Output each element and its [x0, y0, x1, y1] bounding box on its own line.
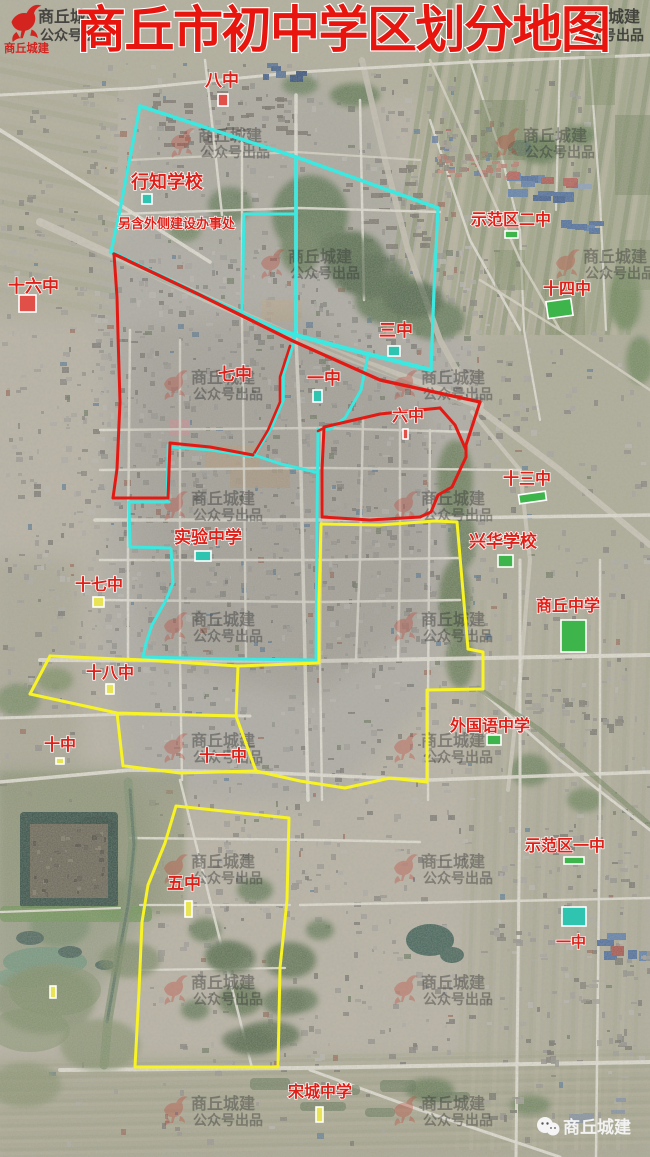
svg-text:商丘城建: 商丘城建	[191, 973, 255, 992]
svg-text:商丘城建: 商丘城建	[191, 489, 255, 508]
svg-text:公众号出品: 公众号出品	[193, 507, 263, 523]
svg-text:商丘市初中学区划分地图: 商丘市初中学区划分地图	[76, 2, 611, 58]
svg-text:十七中: 十七中	[75, 575, 123, 594]
svg-text:公众号出品: 公众号出品	[193, 628, 263, 644]
svg-text:一中: 一中	[307, 368, 341, 388]
svg-text:公众号出品: 公众号出品	[193, 870, 263, 886]
svg-text:十八中: 十八中	[86, 663, 134, 682]
svg-text:宋城中学: 宋城中学	[287, 1082, 352, 1101]
svg-text:外国语中学: 外国语中学	[449, 716, 530, 735]
svg-text:公众号出品: 公众号出品	[423, 1112, 493, 1128]
svg-text:公众号出品: 公众号出品	[423, 628, 493, 644]
svg-text:公众号出品: 公众号出品	[423, 870, 493, 886]
svg-text:商丘城建: 商丘城建	[583, 247, 647, 266]
svg-text:公众号出品: 公众号出品	[423, 991, 493, 1007]
svg-text:十三中: 十三中	[503, 469, 551, 488]
svg-text:商丘城建: 商丘城建	[523, 126, 587, 145]
svg-text:一中: 一中	[556, 933, 586, 951]
svg-text:三中: 三中	[379, 320, 413, 340]
svg-text:商丘城建: 商丘城建	[191, 610, 255, 629]
svg-text:七中: 七中	[218, 364, 252, 384]
svg-text:公众号出品: 公众号出品	[193, 1112, 263, 1128]
svg-text:十中: 十中	[44, 735, 76, 754]
svg-text:商丘城建: 商丘城建	[4, 41, 50, 55]
svg-text:商丘城建: 商丘城建	[563, 1117, 631, 1137]
svg-text:公众号出品: 公众号出品	[423, 749, 493, 765]
svg-text:商丘城建: 商丘城建	[421, 1094, 485, 1113]
svg-text:公众号出品: 公众号出品	[525, 144, 595, 160]
svg-text:公众号出品: 公众号出品	[193, 386, 263, 402]
svg-text:商丘城建: 商丘城建	[191, 1094, 255, 1113]
svg-text:商丘城建: 商丘城建	[421, 973, 485, 992]
svg-text:行知学校: 行知学校	[130, 171, 204, 192]
svg-text:公众号出品: 公众号出品	[290, 265, 360, 281]
svg-text:兴华学校: 兴华学校	[469, 531, 538, 551]
svg-text:十六中: 十六中	[8, 276, 59, 296]
svg-text:示范区二中: 示范区二中	[471, 210, 551, 229]
svg-text:商丘城建: 商丘城建	[421, 489, 485, 508]
svg-text:五中: 五中	[167, 873, 201, 893]
svg-text:八中: 八中	[205, 70, 239, 90]
svg-text:实验中学: 实验中学	[174, 527, 242, 547]
svg-text:商丘城建: 商丘城建	[421, 610, 485, 629]
svg-text:商丘城建: 商丘城建	[191, 852, 255, 871]
svg-text:十一中: 十一中	[199, 746, 247, 765]
svg-text:十四中: 十四中	[543, 279, 591, 298]
svg-text:示范区一中: 示范区一中	[525, 836, 605, 855]
svg-text:商丘中学: 商丘中学	[536, 596, 600, 615]
svg-text:六中: 六中	[392, 406, 424, 425]
svg-text:另含外侧建设办事处: 另含外侧建设办事处	[118, 216, 236, 231]
svg-text:公众号出品: 公众号出品	[585, 265, 650, 281]
svg-text:公众号出品: 公众号出品	[193, 991, 263, 1007]
svg-text:商丘城建: 商丘城建	[421, 852, 485, 871]
svg-text:公众号出品: 公众号出品	[423, 386, 493, 402]
